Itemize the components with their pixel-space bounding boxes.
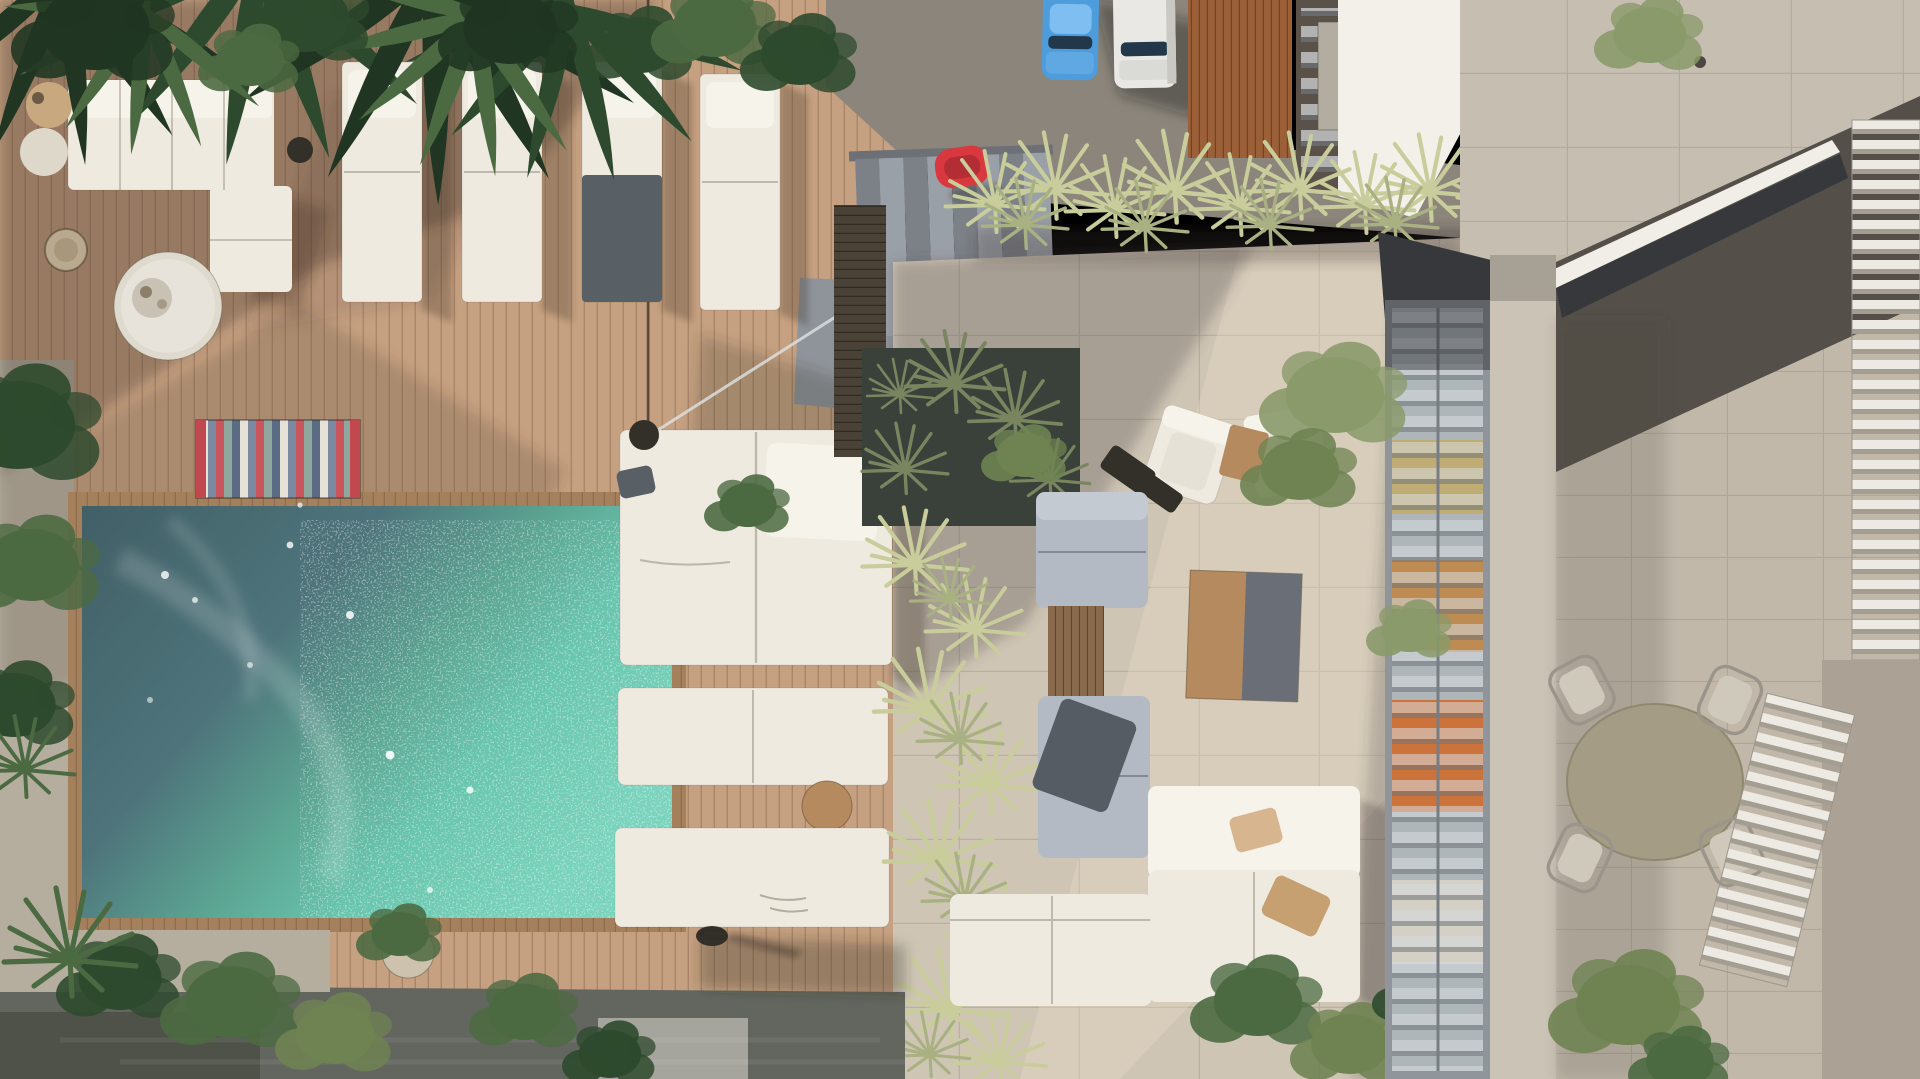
daybed [615,828,889,927]
table-item [32,92,44,104]
gray-daybed [1036,492,1148,608]
lantern [629,420,659,450]
striped-mat [196,420,360,498]
round-coffee-table [114,252,222,360]
windshield [1048,36,1092,50]
grass-shadow [700,935,905,995]
black-stool [287,137,313,163]
coffee-table-two-tone [1186,570,1302,702]
aerial-render-canvas [0,0,1920,1079]
side-table [26,82,72,128]
hood [1046,52,1094,75]
double-daybed [620,430,892,665]
white-van [1112,0,1176,89]
side-table [20,128,68,176]
tray [132,278,172,318]
swimming-pool [68,492,686,932]
louvre-window-right [1852,120,1920,660]
glazing-top-shadow [1385,300,1490,370]
car-roof [1049,4,1092,35]
gray-sofa [1030,696,1150,858]
daybed [618,688,888,785]
dark-section [582,175,662,302]
windshield [1121,42,1169,57]
sun-lounger [700,74,780,310]
round-side-table [802,781,852,831]
hood [1119,60,1171,81]
blue-car [1042,0,1100,80]
concrete-pillar [1490,255,1556,1079]
